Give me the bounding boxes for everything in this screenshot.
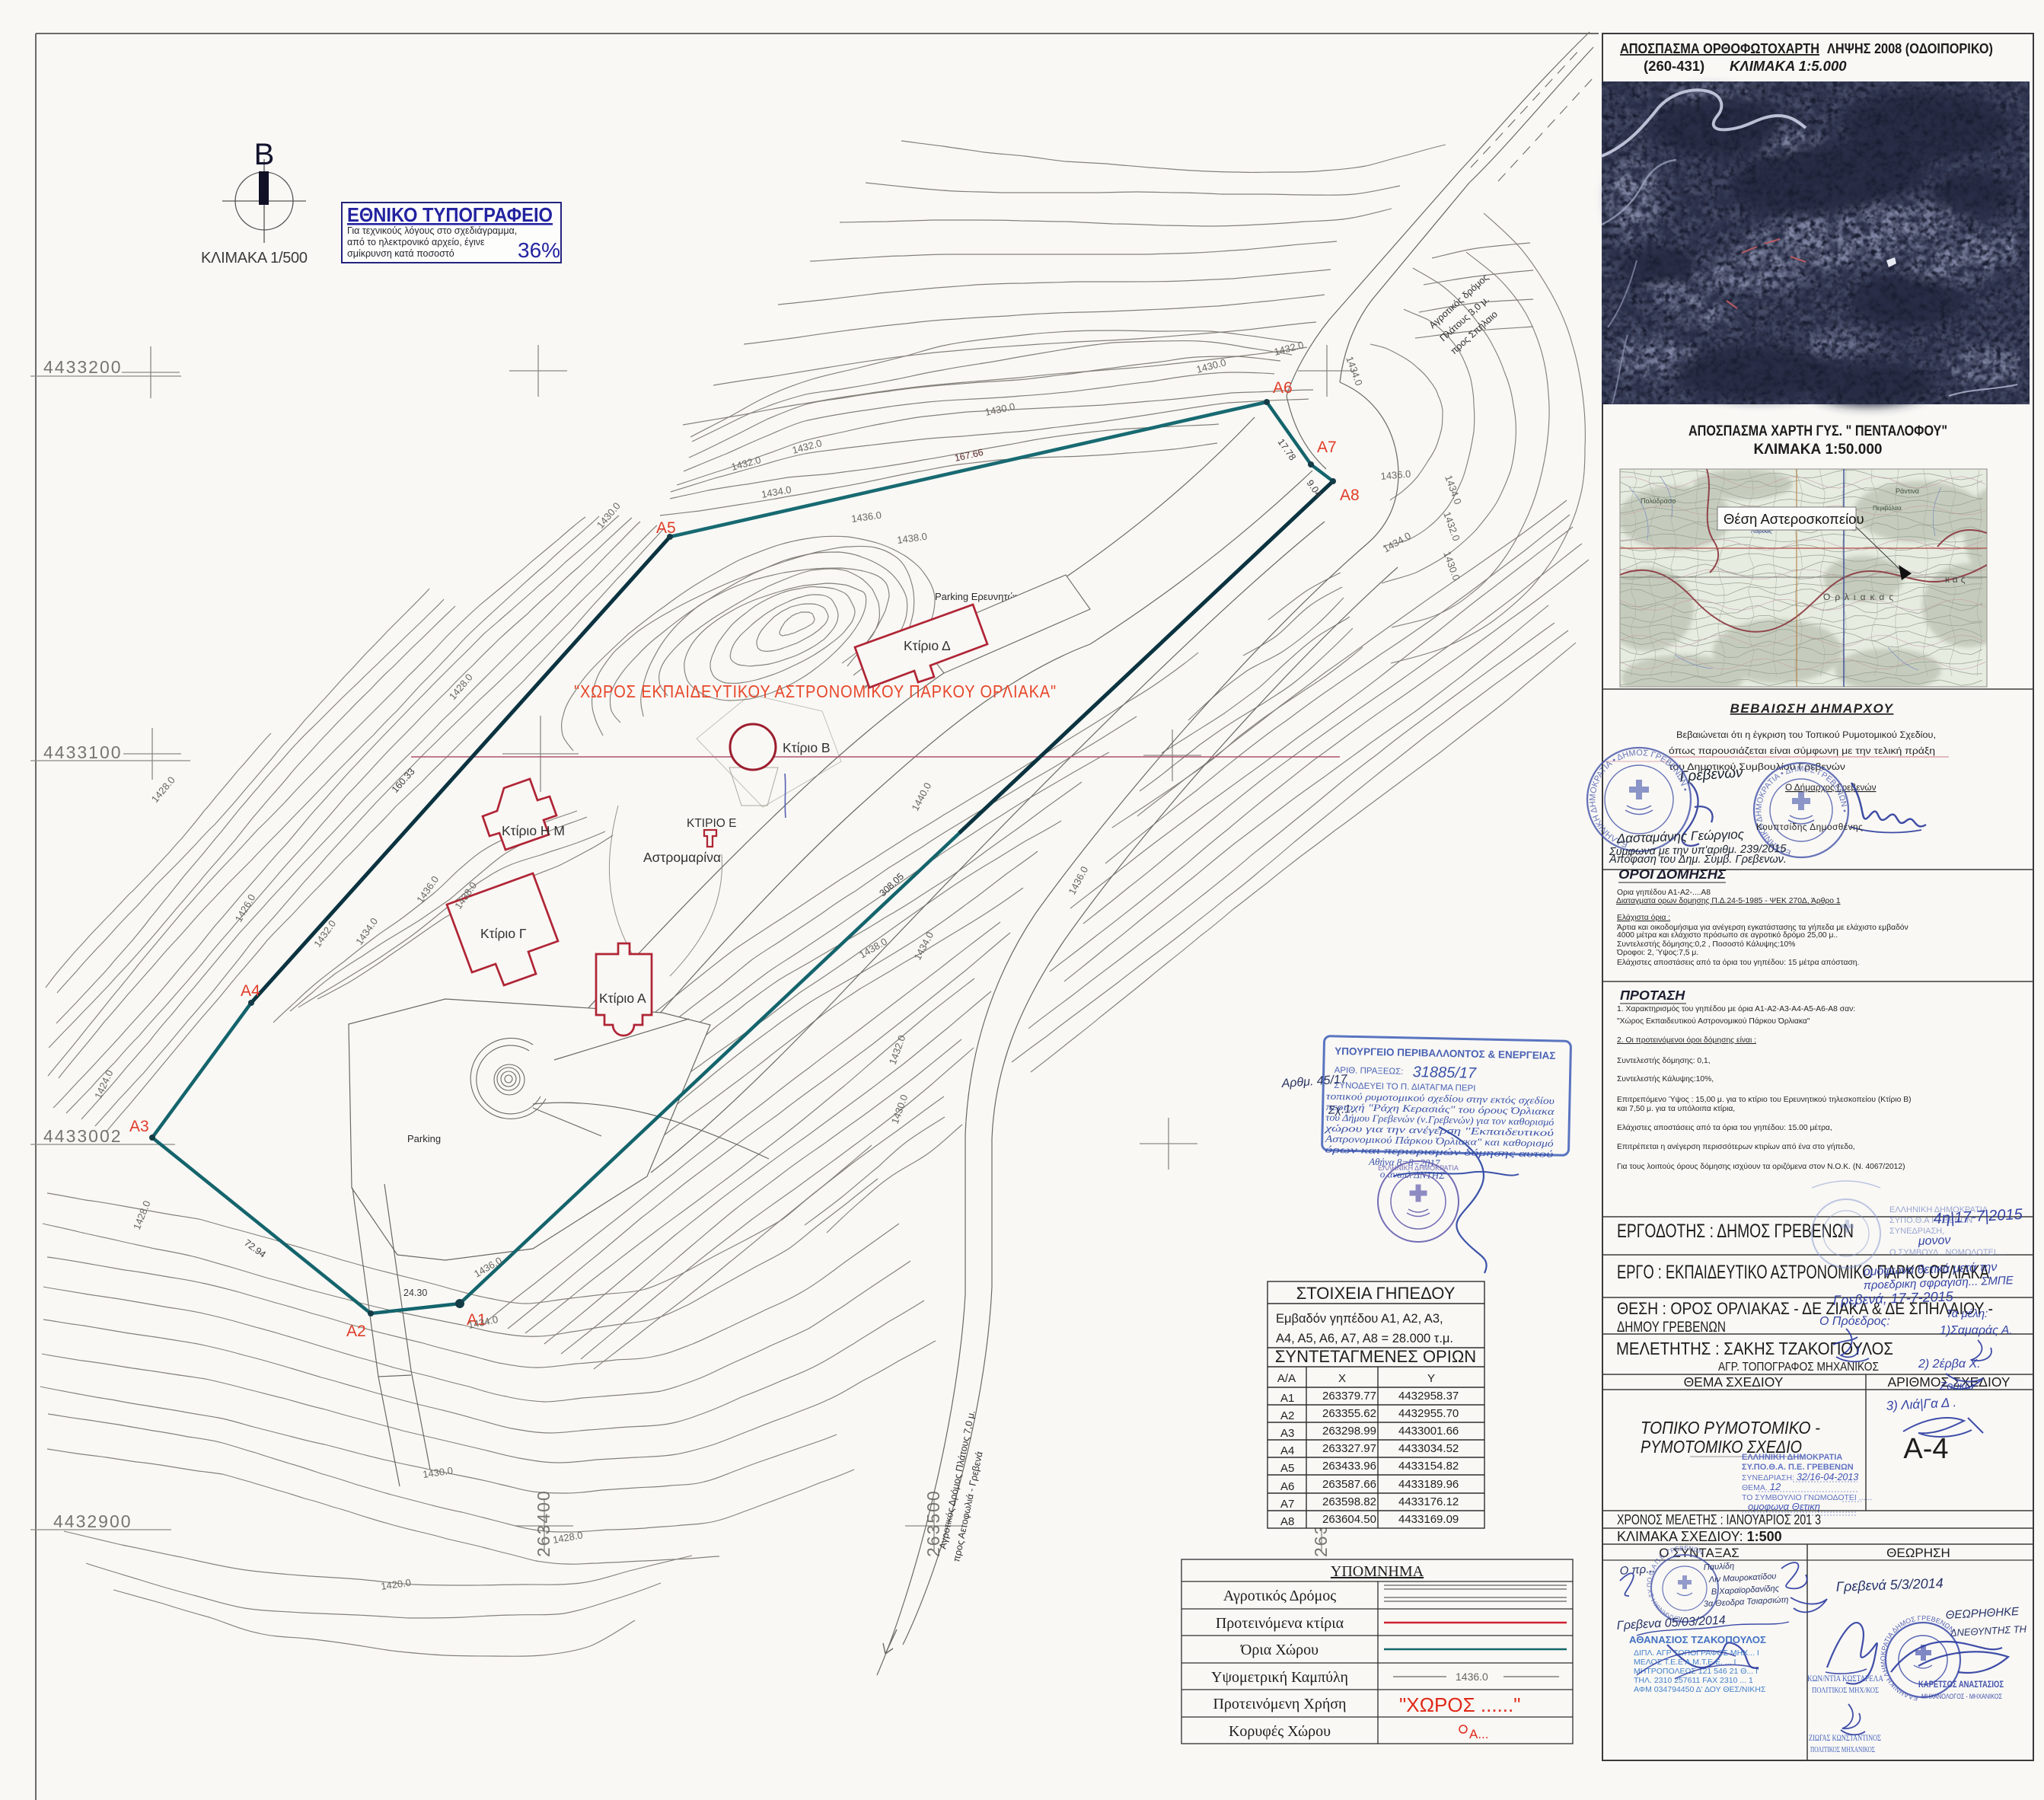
svg-text:ΑΓΡ. ΤΟΠΟΓΡΑΦΟΣ ΜΗΧΑΝΙΚΟΣ: ΑΓΡ. ΤΟΠΟΓΡΑΦΟΣ ΜΗΧΑΝΙΚΟΣ [1718,1361,1879,1374]
svg-text:"ΧΩΡΟΣ ......": "ΧΩΡΟΣ ......" [1399,1693,1520,1716]
svg-text:Σχ.1.: Σχ.1. [1327,1103,1354,1117]
svg-text:1. Χαρακτηρισμός του γηπέδου μ: 1. Χαρακτηρισμός του γηπέδου με όρια Α1-… [1617,1004,1855,1013]
svg-text:4432955.70: 4432955.70 [1398,1407,1459,1420]
svg-text:263327.97: 263327.97 [1322,1442,1376,1455]
svg-text:ΖΙΩΓΑΣ ΚΩΝΣΤΑΝΤΙΝΟΣ: ΖΙΩΓΑΣ ΚΩΝΣΤΑΝΤΙΝΟΣ [1809,1734,1881,1743]
svg-text:Χ: Χ [1338,1372,1346,1385]
svg-text:Όροφοι: 2, Ύψος:7,5 μ.: Όροφοι: 2, Ύψος:7,5 μ. [1616,949,1698,957]
svg-text:ΠΟΛΙΤΙΚΟΣ ΜΗΧ/ΚΟΣ: ΠΟΛΙΤΙΚΟΣ ΜΗΧ/ΚΟΣ [1812,1687,1879,1695]
svg-text:4433034.52: 4433034.52 [1398,1442,1459,1455]
svg-text:ΠΡΟΤΑΣΗ: ΠΡΟΤΑΣΗ [1620,988,1685,1003]
svg-text:A2: A2 [346,1323,366,1340]
svg-text:Ο πρ...: Ο πρ... [1619,1562,1656,1578]
svg-text:Για τους λοιπούς όρους δόμησης: Για τους λοιπούς όρους δόμησης ισχύουν τ… [1617,1162,1905,1171]
svg-text:ΔΗΜΟΥ ΓΡΕΒΕΝΩΝ: ΔΗΜΟΥ ΓΡΕΒΕΝΩΝ [1617,1320,1726,1336]
svg-text:ΒΕΒΑΙΩΣΗ ΔΗΜΑΡΧΟΥ: ΒΕΒΑΙΩΣΗ ΔΗΜΑΡΧΟΥ [1730,701,1894,716]
svg-text:ΕΘΝΙΚΟ ΤΥΠΟΓΡΑΦΕΙΟ: ΕΘΝΙΚΟ ΤΥΠΟΓΡΑΦΕΙΟ [347,203,553,226]
svg-text:Α6: Α6 [1280,1480,1294,1493]
svg-text:Α7: Α7 [1280,1498,1294,1511]
svg-text:ΘΕΩΡΗΣΗ: ΘΕΩΡΗΣΗ [1886,1546,1950,1560]
svg-text:κας: κας [1945,574,1969,585]
svg-text:Προτεινόμενη Χρήση: Προτεινόμενη Χρήση [1213,1696,1346,1712]
svg-text:ΚΑΡΕΤΣΟΣ ΑΝΑΣΤΑΣΙΟΣ: ΚΑΡΕΤΣΟΣ ΑΝΑΣΤΑΣΙΟΣ [1918,1680,2004,1690]
svg-text:(260-431): (260-431) [1644,58,1704,74]
svg-text:36%: 36% [518,238,560,262]
svg-text:"ΧΩΡΟΣ ΕΚΠΑΙΔΕΥΤΙΚΟΥ ΑΣΤΡΟΝΟΜΙ: "ΧΩΡΟΣ ΕΚΠΑΙΔΕΥΤΙΚΟΥ ΑΣΤΡΟΝΟΜΙΚΟΥ ΠΑΡΚΟΥ… [574,681,1057,701]
svg-text:Κτίριο Η Μ: Κτίριο Η Μ [502,823,565,838]
svg-text:Α...: Α... [1469,1727,1489,1741]
svg-text:Α1: Α1 [1280,1392,1294,1405]
svg-text:Αστρομαρίνα: Αστρομαρίνα [643,850,721,865]
svg-text:Εμβαδόν γηπέδου Α1, Α2, Α3,: Εμβαδόν γηπέδου Α1, Α2, Α3, [1276,1312,1443,1326]
svg-text:Parking: Parking [407,1133,441,1144]
svg-text:Α-4: Α-4 [1903,1433,1948,1465]
svg-text:Απόφαση του Δημ. Συμβ. Γρεβενω: Απόφαση του Δημ. Συμβ. Γρεβενων. [1609,854,1787,866]
svg-text:Συντελεστής δόμησης: 0,1,: Συντελεστής δόμησης: 0,1, [1617,1056,1711,1065]
svg-text:ΥΠΟΜΝΗΜΑ: ΥΠΟΜΝΗΜΑ [1331,1563,1424,1580]
svg-text:ΕΡΓΟΔΟΤΗΣ : ΔΗΜΟΣ ΓΡΕΒΕΝΩΝ: ΕΡΓΟΔΟΤΗΣ : ΔΗΜΟΣ ΓΡΕΒΕΝΩΝ [1617,1221,1854,1242]
svg-text:ΑΦΜ 034794450 Δ' ΔΟΥ ΘΕΣ/ΝΙΚ: ΑΦΜ 034794450 Δ' ΔΟΥ ΘΕΣ/ΝΙΚΗΣ [1634,1685,1766,1694]
svg-text:ΤΗΛ. 2310 257611 FAX 2310 ...: ΤΗΛ. 2310 257611 FAX 2310 ... 1 [1634,1676,1753,1685]
svg-text:Βεβαιώνεται ότι η έγκριση του: Βεβαιώνεται ότι η έγκριση του Τοπικού Ρυ… [1676,729,1936,740]
svg-text:4433001.66: 4433001.66 [1398,1425,1459,1438]
svg-text:και 7,50 μ. για τα υπόλοιπα κτ: και 7,50 μ. για τα υπόλοιπα κτίρια, [1617,1104,1735,1113]
svg-text:Α3: Α3 [1280,1427,1294,1440]
svg-text:4433176.12: 4433176.12 [1398,1495,1459,1508]
svg-text:263433.96: 263433.96 [1322,1460,1376,1473]
svg-text:Α2: Α2 [1280,1409,1294,1422]
svg-text:Συντελεστής Κάλυψης:10%,: Συντελεστής Κάλυψης:10%, [1617,1074,1714,1084]
svg-text:μονον: μονον [1918,1234,1951,1249]
svg-text:263400: 263400 [534,1489,553,1557]
svg-text:B: B [254,138,275,171]
svg-text:ΚΛΙΜΑΚΑ ΣΧΕΔΙΟΥ: 1:500: ΚΛΙΜΑΚΑ ΣΧΕΔΙΟΥ: 1:500 [1617,1529,1782,1544]
svg-text:ΧΡΟΝΟΣ ΜΕΛΕΤΗΣ : ΙΑΝΟΥΑΡΙΟΣ 2: ΧΡΟΝΟΣ ΜΕΛΕΤΗΣ : ΙΑΝΟΥΑΡΙΟΣ 201 3 [1617,1512,1821,1527]
svg-text:4000 μέτρα και ελάχιστο πρόσωπ: 4000 μέτρα και ελάχιστο πρόσωπο σε αγροτ… [1617,930,1838,940]
svg-text:263604.50: 263604.50 [1322,1513,1376,1526]
svg-text:Επιτρέπεται η ανέγερση περισσό: Επιτρέπεται η ανέγερση περισσότερων κτιρ… [1617,1142,1855,1151]
svg-text:Περιβόλαα: Περιβόλαα [1873,505,1902,512]
svg-text:263355.62: 263355.62 [1322,1407,1376,1420]
svg-text:Ελάχιστες αποστάσεις από τα όρ: Ελάχιστες αποστάσεις από τα όρια του γηπ… [1617,1123,1832,1132]
svg-text:Ελάχιστα όρια :: Ελάχιστα όρια : [1617,913,1670,922]
svg-text:Τα μέλη:: Τα μέλη: [1946,1307,1988,1320]
svg-text:ΑΠΟΣΠΑΣΜΑ ΧΑΡΤΗ ΓΥΣ. " ΠΕΝΤΑΛΟ: ΑΠΟΣΠΑΣΜΑ ΧΑΡΤΗ ΓΥΣ. " ΠΕΝΤΑΛΟΦΟΥ" [1688,423,1947,439]
svg-text:Ράντινα: Ράντινα [1896,487,1919,495]
svg-text:σμίκρυνση κατά ποσοστό: σμίκρυνση κατά ποσοστό [347,248,454,259]
svg-text:Ο Πρόεδρος:: Ο Πρόεδρος: [1819,1315,1890,1328]
svg-text:ΜΗΧΑΝΟΛΟΓΟΣ - ΜΗΧΑΝΙΚΟΣ: ΜΗΧΑΝΟΛΟΓΟΣ - ΜΗΧΑΝΙΚΟΣ [1921,1693,2002,1701]
svg-text:Θέση Αστεροσκοπείου: Θέση Αστεροσκοπείου [1724,511,1864,527]
svg-text:ΜΗΤΡΟΠΟΛΕΩΣ 121 546 21 Θ...: ΜΗΤΡΟΠΟΛΕΩΣ 121 546 21 Θ... Ι [1634,1667,1758,1676]
svg-text:από το ηλεκτρονικό αρχείο, έγι: από το ηλεκτρονικό αρχείο, έγινε [347,237,485,247]
svg-text:Διαταγματα ορων δομησης Π.Δ.2: Διαταγματα ορων δομησης Π.Δ.24-5-1985 - … [1616,897,1841,905]
svg-text:Α/Α: Α/Α [1277,1372,1296,1385]
svg-text:A5: A5 [656,519,676,537]
svg-text:263587.66: 263587.66 [1322,1478,1376,1491]
svg-text:ΟΡΟΙ ΔΟΜΗΣΗΣ: ΟΡΟΙ ΔΟΜΗΣΗΣ [1618,866,1726,882]
svg-text:ΚΛΙΜΑΚΑ 1:5.000: ΚΛΙΜΑΚΑ 1:5.000 [1730,58,1847,74]
svg-text:Κορυφές Χώρου: Κορυφές Χώρου [1229,1723,1331,1740]
svg-text:όπως παρουσιάζεται είναι σύμφω: όπως παρουσιάζεται είναι σύμφωνη με την … [1669,745,1935,756]
svg-text:4432900: 4432900 [53,1511,132,1531]
svg-text:4433169.09: 4433169.09 [1398,1513,1459,1526]
svg-text:263379.77: 263379.77 [1322,1390,1376,1403]
svg-text:Επιτρεπόμενο Ύψος : 15,00 μ. γ: Επιτρεπόμενο Ύψος : 15,00 μ. για το κτίρ… [1617,1095,1912,1104]
svg-text:ΠΟΛΙΤΙΚΟΣ ΜΗΧΑΝΙΚΟΣ: ΠΟΛΙΤΙΚΟΣ ΜΗΧΑΝΙΚΟΣ [1810,1746,1875,1754]
svg-text:4433154.82: 4433154.82 [1398,1460,1459,1473]
svg-text:Αγροτικός Δρόμος: Αγροτικός Δρόμος [1223,1588,1336,1604]
svg-text:ΔΙΠΛ. ΑΓΡ ΤΟΠΟΓΡΑΦΟΣ ΜΗΧ...: ΔΙΠΛ. ΑΓΡ ΤΟΠΟΓΡΑΦΟΣ ΜΗΧ... Ι [1634,1648,1759,1658]
svg-text:A6: A6 [1273,379,1293,397]
svg-text:ΣΤΟΙΧΕΙΑ ΓΗΠΕΔΟΥ: ΣΤΟΙΧΕΙΑ ΓΗΠΕΔΟΥ [1296,1284,1456,1303]
svg-text:4433100: 4433100 [43,742,123,762]
svg-text:2. Οι προτεινόμενοι όροι δόμησ: 2. Οι προτεινόμενοι όροι δόμησης είναι : [1617,1036,1756,1045]
svg-text:Κτίριο Α: Κτίριο Α [599,991,646,1006]
svg-text:Κτίριο Γ: Κτίριο Γ [480,926,527,941]
svg-text:263598.82: 263598.82 [1322,1495,1376,1508]
svg-text:ΕΛΛΗΝΙΚΗ ΔΗΜΟΚΡΑΤΙΑ: ΕΛΛΗΝΙΚΗ ΔΗΜΟΚΡΑΤΙΑ [1742,1453,1842,1462]
svg-text:Ελάχιστες αποστάσεις από τα όρ: Ελάχιστες αποστάσεις από τα όρια του γηπ… [1617,958,1859,967]
svg-text:ΣΥ.ΠΟ.Θ.Α. Π.Ε. ΓΡΕΒΕΝΩΝ: ΣΥ.ΠΟ.Θ.Α. Π.Ε. ΓΡΕΒΕΝΩΝ [1742,1463,1854,1472]
svg-text:Ο ΣΥΜΒΟΥΛ...ΝΩΜΟΔΟΤΕΙ....: Ο ΣΥΜΒΟΥΛ...ΝΩΜΟΔΟΤΕΙ.... [1889,1248,2005,1257]
svg-text:Συντελεστής δόμησης:0,2 , Ποσο: Συντελεστής δόμησης:0,2 , Ποσοστό Κάλυψη… [1617,940,1795,949]
svg-text:Προτεινόμενα κτίρια: Προτεινόμενα κτίρια [1216,1615,1344,1632]
svg-text:Όρια Χώρου: Όρια Χώρου [1240,1642,1319,1658]
svg-text:A8: A8 [1340,487,1360,504]
svg-text:Παυλίδη: Παυλίδη [1704,1562,1735,1572]
svg-text:Υ: Υ [1427,1372,1435,1385]
svg-text:4433189.96: 4433189.96 [1398,1478,1459,1491]
svg-text:4433002: 4433002 [43,1126,123,1146]
svg-text:31885/17: 31885/17 [1412,1064,1477,1082]
svg-text:ΚΩΝ/ΝΤΙΑ ΚΩΣΤΑΡΕΛΑ: ΚΩΝ/ΝΤΙΑ ΚΩΣΤΑΡΕΛΑ [1807,1674,1884,1684]
svg-text:Κουπτσίδης Δημοσθένης: Κουπτσίδης Δημοσθένης [1756,822,1863,832]
svg-text:ΑΠΟΣΠΑΣΜΑ ΟΡΘΟΦΩΤΟΧΑΡΤΗ: ΑΠΟΣΠΑΣΜΑ ΟΡΘΟΦΩΤΟΧΑΡΤΗ [1620,40,1819,56]
svg-text:4433200: 4433200 [43,357,123,377]
svg-text:263298.99: 263298.99 [1322,1425,1376,1438]
svg-text:ΚΛΙΜΑΚΑ 1:50.000: ΚΛΙΜΑΚΑ 1:50.000 [1754,442,1883,458]
svg-text:A4: A4 [241,982,260,1000]
svg-text:Α4: Α4 [1280,1444,1294,1457]
svg-text:ΣΥΝΕΔΡΙΑΣΗ: 32/16-04-2013: ΣΥΝΕΔΡΙΑΣΗ: 32/16-04-2013 [1742,1472,1858,1482]
svg-text:A7: A7 [1317,439,1337,456]
svg-text:Υψομετρική Καμπύλη: Υψομετρική Καμπύλη [1211,1669,1348,1686]
svg-text:ΛΗΨΗΣ 2008 (ΟΔΟΙΠΟΡΙΚΟ): ΛΗΨΗΣ 2008 (ΟΔΟΙΠΟΡΙΚΟ) [1827,40,1993,56]
svg-text:1436.0: 1436.0 [1456,1671,1488,1683]
svg-text:1)Σαμαράς Α.: 1)Σαμαράς Α. [1940,1324,2013,1337]
svg-text:ΑΘΑΝΑΣΙΟΣ ΤΖΑΚΟΠΟΥΛΟΣ: ΑΘΑΝΑΣΙΟΣ ΤΖΑΚΟΠΟΥΛΟΣ [1629,1634,1766,1645]
svg-text:Για τεχνικούς λόγους στο σχεδι: Για τεχνικούς λόγους στο σχεδιάγραμμα, [347,225,517,236]
svg-text:Κτίριο Δ: Κτίριο Δ [904,638,951,653]
svg-text:Κτίριο Β: Κτίριο Β [783,740,831,755]
svg-text:"Χώρος Εκπαιδευτικού Αστρονομι: "Χώρος Εκπαιδευτικού Αστρονομικού Πάρκου… [1617,1016,1810,1026]
svg-text:Α5: Α5 [1280,1462,1294,1475]
svg-text:Α8: Α8 [1280,1515,1294,1528]
svg-text:Α4, Α5, Α6, Α7, Α8 = 28.000 τ.: Α4, Α5, Α6, Α7, Α8 = 28.000 τ.μ. [1276,1332,1453,1345]
svg-text:ΕΛΛΗΝΙΚΗ ΔΗΜΟΚΡΑΤΙΑ: ΕΛΛΗΝΙΚΗ ΔΗΜΟΚΡΑΤΙΑ [1378,1164,1459,1172]
svg-text:ΤΟΠΙΚΟ ΡΥΜΟΤΟΜΙΚΟ -: ΤΟΠΙΚΟ ΡΥΜΟΤΟΜΙΚΟ - [1641,1418,1820,1438]
svg-text:Πολύδρασο: Πολύδρασο [1641,497,1676,505]
svg-text:ΘΕΜΑ ΣΧΕΔΙΟΥ: ΘΕΜΑ ΣΧΕΔΙΟΥ [1684,1374,1784,1390]
svg-text:ΚΤΙΡΙΟ Ε: ΚΤΙΡΙΟ Ε [687,817,736,830]
svg-text:Ορλιακας: Ορλιακας [1823,592,1898,602]
svg-text:A3: A3 [129,1118,149,1135]
svg-text:ΚΛΙΜΑΚΑ 1/500: ΚΛΙΜΑΚΑ 1/500 [201,250,308,266]
svg-text:ΣΥΝΤΕΤΑΓΜΕΝΕΣ ΟΡΙΩΝ: ΣΥΝΤΕΤΑΓΜΕΝΕΣ ΟΡΙΩΝ [1275,1347,1476,1366]
svg-text:Ορια γηπέδου Α1-Α2-....Α8: Ορια γηπέδου Α1-Α2-....Α8 [1617,888,1711,897]
svg-text:24.30: 24.30 [403,1288,427,1298]
svg-text:ΘΕΜΑ. 12: ΘΕΜΑ. 12 [1742,1481,1781,1492]
svg-text:4432958.37: 4432958.37 [1398,1390,1459,1403]
